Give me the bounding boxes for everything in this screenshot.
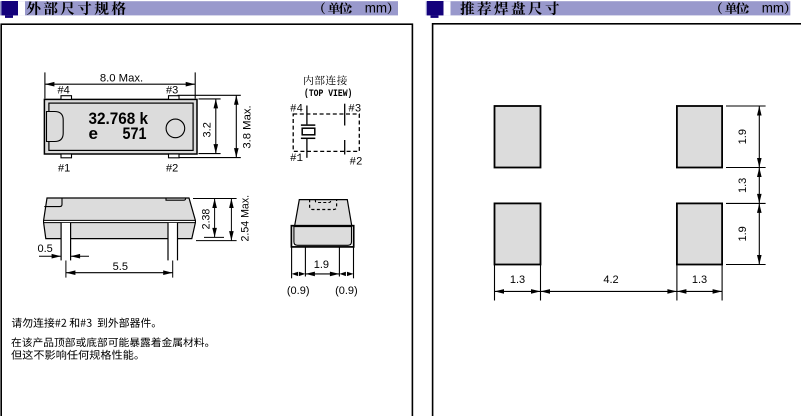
svg-text:3.2: 3.2 — [202, 122, 214, 137]
svg-text:3.8 Max.: 3.8 Max. — [241, 105, 253, 148]
svg-text:1.3: 1.3 — [692, 274, 707, 286]
svg-text:4.2: 4.2 — [603, 274, 618, 286]
svg-text:#2: #2 — [350, 157, 363, 169]
svg-text:(TOP VIEW): (TOP VIEW) — [304, 88, 352, 100]
svg-text:2.54 Max.: 2.54 Max. — [240, 195, 252, 242]
svg-text:1.9: 1.9 — [314, 259, 329, 271]
svg-text:1.9: 1.9 — [737, 226, 749, 241]
svg-text:#1: #1 — [290, 153, 303, 165]
svg-text:1.9: 1.9 — [737, 129, 749, 144]
svg-text:mm: mm — [762, 1, 784, 16]
svg-text:1.3: 1.3 — [737, 178, 749, 193]
svg-text:(0.9): (0.9) — [287, 285, 310, 297]
svg-text:(0.9): (0.9) — [335, 285, 358, 297]
svg-text:#3: #3 — [166, 85, 178, 97]
svg-text:8.0 Max.: 8.0 Max. — [100, 73, 143, 85]
svg-text:571: 571 — [123, 124, 147, 143]
svg-text:e: e — [89, 124, 98, 143]
svg-text:5.5: 5.5 — [113, 261, 128, 273]
svg-text:#4: #4 — [58, 85, 70, 97]
svg-text:0.5: 0.5 — [38, 243, 53, 255]
svg-text:#1: #1 — [58, 163, 70, 175]
svg-text:#2: #2 — [166, 163, 178, 175]
svg-text:1.3: 1.3 — [510, 274, 525, 286]
svg-text:2.38: 2.38 — [201, 209, 213, 230]
svg-text:mm: mm — [365, 1, 387, 16]
